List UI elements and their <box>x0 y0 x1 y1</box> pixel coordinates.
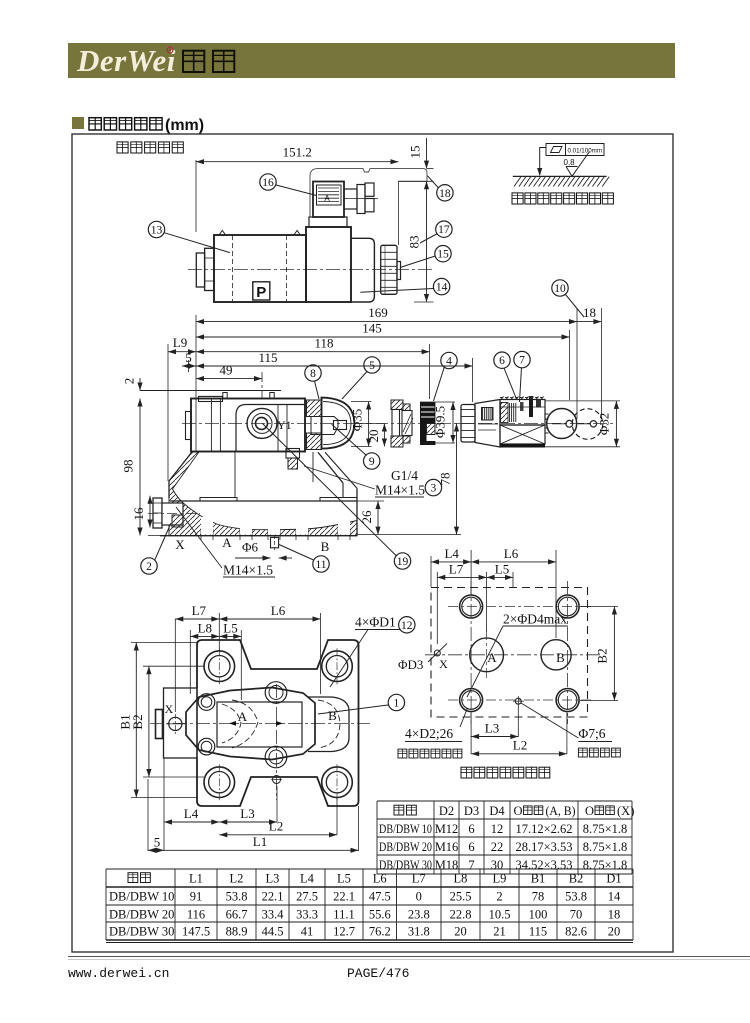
svg-text:Φ32: Φ32 <box>597 413 612 436</box>
svg-text:88.9: 88.9 <box>226 925 248 939</box>
svg-text:L7: L7 <box>449 562 464 577</box>
svg-text:0.01/100mm: 0.01/100mm <box>568 147 603 154</box>
svg-text:G1/4: G1/4 <box>391 468 418 483</box>
svg-text:B: B <box>321 539 330 554</box>
svg-text:115: 115 <box>258 350 277 365</box>
svg-text:6: 6 <box>468 840 474 854</box>
svg-text:22: 22 <box>491 840 504 854</box>
svg-text:L2: L2 <box>230 872 244 886</box>
svg-text:30: 30 <box>491 858 504 872</box>
svg-text:(mm): (mm) <box>165 117 204 134</box>
svg-text:2×ΦD4max: 2×ΦD4max <box>503 612 567 627</box>
svg-text:53.8: 53.8 <box>226 890 248 904</box>
svg-text:Y1: Y1 <box>277 418 292 432</box>
svg-text:L2: L2 <box>269 819 283 834</box>
svg-text:B: B <box>328 708 337 723</box>
svg-text:5: 5 <box>154 835 161 850</box>
svg-text:8.75×1.8: 8.75×1.8 <box>583 822 628 836</box>
svg-text:L4: L4 <box>184 806 199 821</box>
svg-text:0.8: 0.8 <box>564 158 576 167</box>
svg-text:D2: D2 <box>439 804 454 818</box>
svg-text:7: 7 <box>468 858 474 872</box>
svg-text:M16: M16 <box>435 840 459 854</box>
svg-text:4×D2;26: 4×D2;26 <box>405 726 453 741</box>
svg-text:23.8: 23.8 <box>408 908 430 922</box>
svg-text:X: X <box>439 657 448 671</box>
svg-text:B1: B1 <box>531 872 546 886</box>
svg-text:L8: L8 <box>454 872 468 886</box>
svg-text:18: 18 <box>583 305 596 320</box>
svg-text:www.derwei.cn: www.derwei.cn <box>68 966 169 981</box>
svg-text:25.5: 25.5 <box>450 890 472 904</box>
svg-text:M12: M12 <box>435 822 459 836</box>
svg-text:78: 78 <box>438 473 453 486</box>
svg-text:2: 2 <box>146 561 152 573</box>
svg-text:44.5: 44.5 <box>262 925 284 939</box>
svg-text:14: 14 <box>436 282 448 294</box>
svg-text:22.8: 22.8 <box>450 908 472 922</box>
svg-text:53.8: 53.8 <box>565 890 587 904</box>
svg-text:41: 41 <box>301 925 314 939</box>
svg-text:15: 15 <box>437 249 449 261</box>
svg-text:26: 26 <box>359 510 374 524</box>
svg-text:70: 70 <box>570 908 583 922</box>
svg-text:L5: L5 <box>223 620 237 635</box>
svg-text:M14×1.5: M14×1.5 <box>223 563 273 578</box>
svg-text:147.5: 147.5 <box>182 925 210 939</box>
svg-text:22.1: 22.1 <box>262 890 284 904</box>
svg-text:Φ6: Φ6 <box>242 540 259 555</box>
svg-text:D4: D4 <box>489 804 505 818</box>
svg-text:L4: L4 <box>300 872 315 886</box>
svg-text:47.5: 47.5 <box>369 890 391 904</box>
svg-text:DB/DBW 30: DB/DBW 30 <box>109 925 174 939</box>
svg-text:33.4: 33.4 <box>262 908 285 922</box>
svg-text:22.1: 22.1 <box>333 890 355 904</box>
svg-text:X: X <box>165 702 174 716</box>
svg-text:10.5: 10.5 <box>489 908 511 922</box>
svg-text:L1: L1 <box>189 872 203 886</box>
svg-text:33.3: 33.3 <box>296 908 318 922</box>
svg-text:5: 5 <box>185 350 192 365</box>
svg-text:11: 11 <box>315 559 326 571</box>
svg-text:L9: L9 <box>173 335 187 350</box>
svg-text:66.7: 66.7 <box>226 908 248 922</box>
svg-text:A: A <box>324 194 330 203</box>
svg-text:13: 13 <box>151 225 163 237</box>
svg-text:1: 1 <box>394 698 400 710</box>
svg-text:L1: L1 <box>253 834 267 849</box>
svg-text:19: 19 <box>397 556 409 568</box>
svg-text:P: P <box>256 284 266 301</box>
svg-text:6: 6 <box>468 822 474 836</box>
svg-text:16: 16 <box>262 177 274 189</box>
svg-text:L6: L6 <box>504 546 519 561</box>
svg-text:M18: M18 <box>435 858 459 872</box>
svg-text:20: 20 <box>454 925 467 939</box>
svg-text:12: 12 <box>401 620 413 632</box>
svg-text:83: 83 <box>407 236 422 249</box>
svg-text:8: 8 <box>310 368 316 380</box>
svg-text:A: A <box>487 650 497 665</box>
svg-text:L5: L5 <box>495 562 509 577</box>
svg-text:11.1: 11.1 <box>333 908 354 922</box>
svg-text:21: 21 <box>493 925 506 939</box>
svg-text:L3: L3 <box>240 806 254 821</box>
svg-text:DB/DBW 10: DB/DBW 10 <box>109 890 174 904</box>
svg-text:7: 7 <box>519 355 525 367</box>
svg-text:L7: L7 <box>192 603 207 618</box>
svg-text:L6: L6 <box>271 603 286 618</box>
svg-text:8.75×1.8: 8.75×1.8 <box>583 858 628 872</box>
svg-text:16: 16 <box>131 507 146 521</box>
svg-text:D3: D3 <box>464 804 479 818</box>
svg-text:Φ35: Φ35 <box>350 409 365 432</box>
svg-text:DerWei: DerWei <box>76 43 176 78</box>
svg-text:91: 91 <box>190 890 203 904</box>
svg-text:L3: L3 <box>485 721 499 736</box>
svg-text:2: 2 <box>496 890 502 904</box>
svg-text:(X): (X) <box>617 804 634 818</box>
svg-text:Φ39.5: Φ39.5 <box>433 406 448 438</box>
svg-text:L3: L3 <box>266 872 280 886</box>
svg-text:B2: B2 <box>569 872 584 886</box>
svg-text:DB/DBW 20: DB/DBW 20 <box>109 908 174 922</box>
svg-text:Φ7;6: Φ7;6 <box>578 726 605 741</box>
svg-text:B2: B2 <box>130 714 145 729</box>
svg-text:(A, B): (A, B) <box>546 804 576 818</box>
svg-text:10: 10 <box>554 283 566 295</box>
svg-text:DB/DBW 30: DB/DBW 30 <box>379 858 432 872</box>
svg-text:M14×1.5: M14×1.5 <box>375 483 425 498</box>
svg-text:X: X <box>175 537 185 552</box>
svg-text:6: 6 <box>499 355 505 367</box>
svg-text:76.2: 76.2 <box>369 925 391 939</box>
svg-text:L2: L2 <box>513 738 527 753</box>
svg-text:17.12×2.62: 17.12×2.62 <box>515 822 572 836</box>
svg-text:5: 5 <box>369 360 375 372</box>
svg-text:L8: L8 <box>198 620 212 635</box>
svg-text:L9: L9 <box>493 872 507 886</box>
svg-text:PAGE/476: PAGE/476 <box>347 966 409 981</box>
svg-text:151.2: 151.2 <box>283 145 312 160</box>
svg-text:145: 145 <box>362 321 382 336</box>
svg-text:28.17×3.53: 28.17×3.53 <box>515 840 572 854</box>
svg-text:31.8: 31.8 <box>408 925 430 939</box>
svg-text:B: B <box>556 650 565 665</box>
svg-text:A: A <box>238 709 248 724</box>
svg-text:12.7: 12.7 <box>333 925 355 939</box>
svg-text:20: 20 <box>366 430 381 443</box>
svg-text:78: 78 <box>532 890 545 904</box>
svg-text:2: 2 <box>122 378 137 385</box>
svg-text:98: 98 <box>121 460 136 473</box>
svg-text:118: 118 <box>314 336 333 351</box>
svg-text:4: 4 <box>446 356 452 368</box>
svg-text:O: O <box>585 804 594 818</box>
svg-text:4×ΦD1: 4×ΦD1 <box>355 615 396 630</box>
svg-text:169: 169 <box>368 305 388 320</box>
svg-text:DB/DBW 20: DB/DBW 20 <box>379 840 432 854</box>
svg-text:17: 17 <box>438 224 450 236</box>
svg-text:18: 18 <box>439 188 451 200</box>
svg-text:20: 20 <box>608 925 621 939</box>
svg-text:15: 15 <box>408 146 423 159</box>
svg-text:ΦD3: ΦD3 <box>398 657 423 672</box>
svg-text:L6: L6 <box>373 872 387 886</box>
svg-text:L4: L4 <box>444 546 459 561</box>
svg-text:9: 9 <box>369 456 375 468</box>
svg-text:8.75×1.8: 8.75×1.8 <box>583 840 628 854</box>
svg-text:34.52×3.53: 34.52×3.53 <box>515 858 572 872</box>
svg-text:3: 3 <box>431 483 437 495</box>
svg-text:D1: D1 <box>606 872 621 886</box>
svg-text:12: 12 <box>491 822 504 836</box>
svg-text:82.6: 82.6 <box>565 925 587 939</box>
svg-text:18: 18 <box>608 908 621 922</box>
svg-text:0: 0 <box>416 890 422 904</box>
svg-text:B2: B2 <box>595 648 610 663</box>
svg-text:O: O <box>514 804 523 818</box>
svg-text:55.6: 55.6 <box>369 908 391 922</box>
svg-text:DB/DBW 10: DB/DBW 10 <box>379 822 432 836</box>
svg-text:L5: L5 <box>337 872 351 886</box>
svg-text:14: 14 <box>608 890 621 904</box>
svg-text:116: 116 <box>187 908 205 922</box>
svg-text:A: A <box>222 535 232 550</box>
svg-text:49: 49 <box>220 363 233 378</box>
svg-text:L7: L7 <box>412 872 426 886</box>
svg-text:115: 115 <box>529 925 547 939</box>
svg-text:100: 100 <box>529 908 548 922</box>
svg-text:27.5: 27.5 <box>296 890 318 904</box>
